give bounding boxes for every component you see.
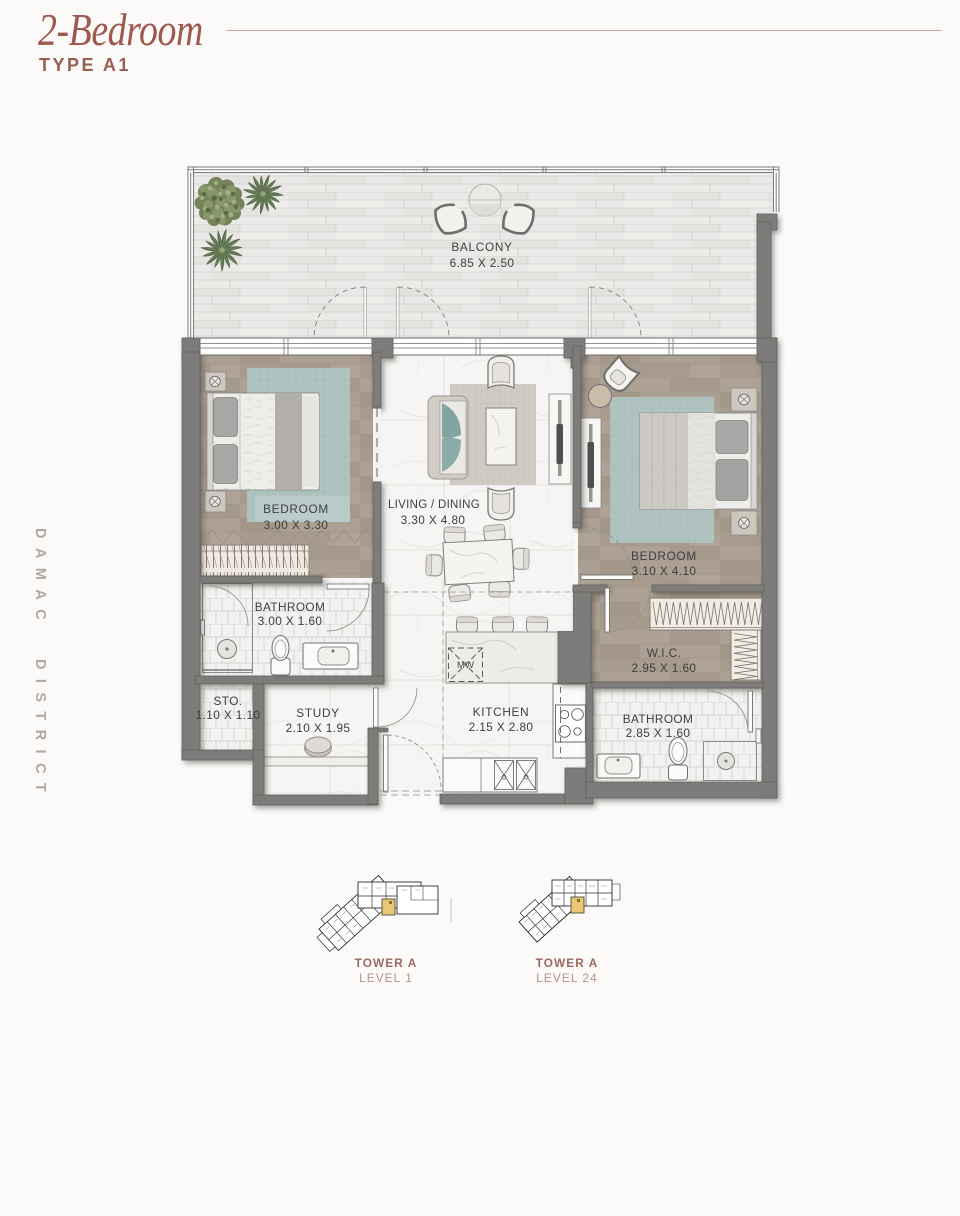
svg-text:3.10 X 4.10: 3.10 X 4.10 [632,564,697,578]
svg-text:2.15 X 2.80: 2.15 X 2.80 [469,720,534,734]
svg-text:2.10 X 1.95: 2.10 X 1.95 [286,721,351,735]
svg-text:TOWER A: TOWER A [536,956,599,970]
svg-text:BATHROOM: BATHROOM [255,600,326,614]
svg-text:MW: MW [457,660,474,671]
svg-text:2.85 X 1.60: 2.85 X 1.60 [626,726,691,740]
svg-text:BEDROOM: BEDROOM [631,549,697,563]
svg-text:2.95 X 1.60: 2.95 X 1.60 [632,661,697,675]
svg-text:1.10 X 1.10: 1.10 X 1.10 [196,708,261,722]
svg-text:3.00 X 3.30: 3.00 X 3.30 [264,518,329,532]
svg-text:LIVING / DINING: LIVING / DINING [388,499,480,511]
svg-text:LEVEL 24: LEVEL 24 [536,971,598,985]
svg-text:BALCONY: BALCONY [451,240,512,254]
svg-text:3.00 X 1.60: 3.00 X 1.60 [258,614,323,628]
svg-text:6.85 X 2.50: 6.85 X 2.50 [450,256,515,270]
svg-text:BEDROOM: BEDROOM [263,502,329,516]
svg-text:W.I.C.: W.I.C. [647,646,682,660]
svg-text:STUDY: STUDY [296,706,339,720]
svg-text:STO.: STO. [214,694,243,708]
svg-text:DAMAC DISTRICT: DAMAC DISTRICT [32,528,48,801]
svg-text:KITCHEN: KITCHEN [473,705,530,719]
svg-text:TOWER A: TOWER A [355,956,418,970]
svg-text:LEVEL 1: LEVEL 1 [359,971,413,985]
svg-text:BATHROOM: BATHROOM [623,712,694,726]
svg-text:3.30 X 4.80: 3.30 X 4.80 [401,513,466,527]
